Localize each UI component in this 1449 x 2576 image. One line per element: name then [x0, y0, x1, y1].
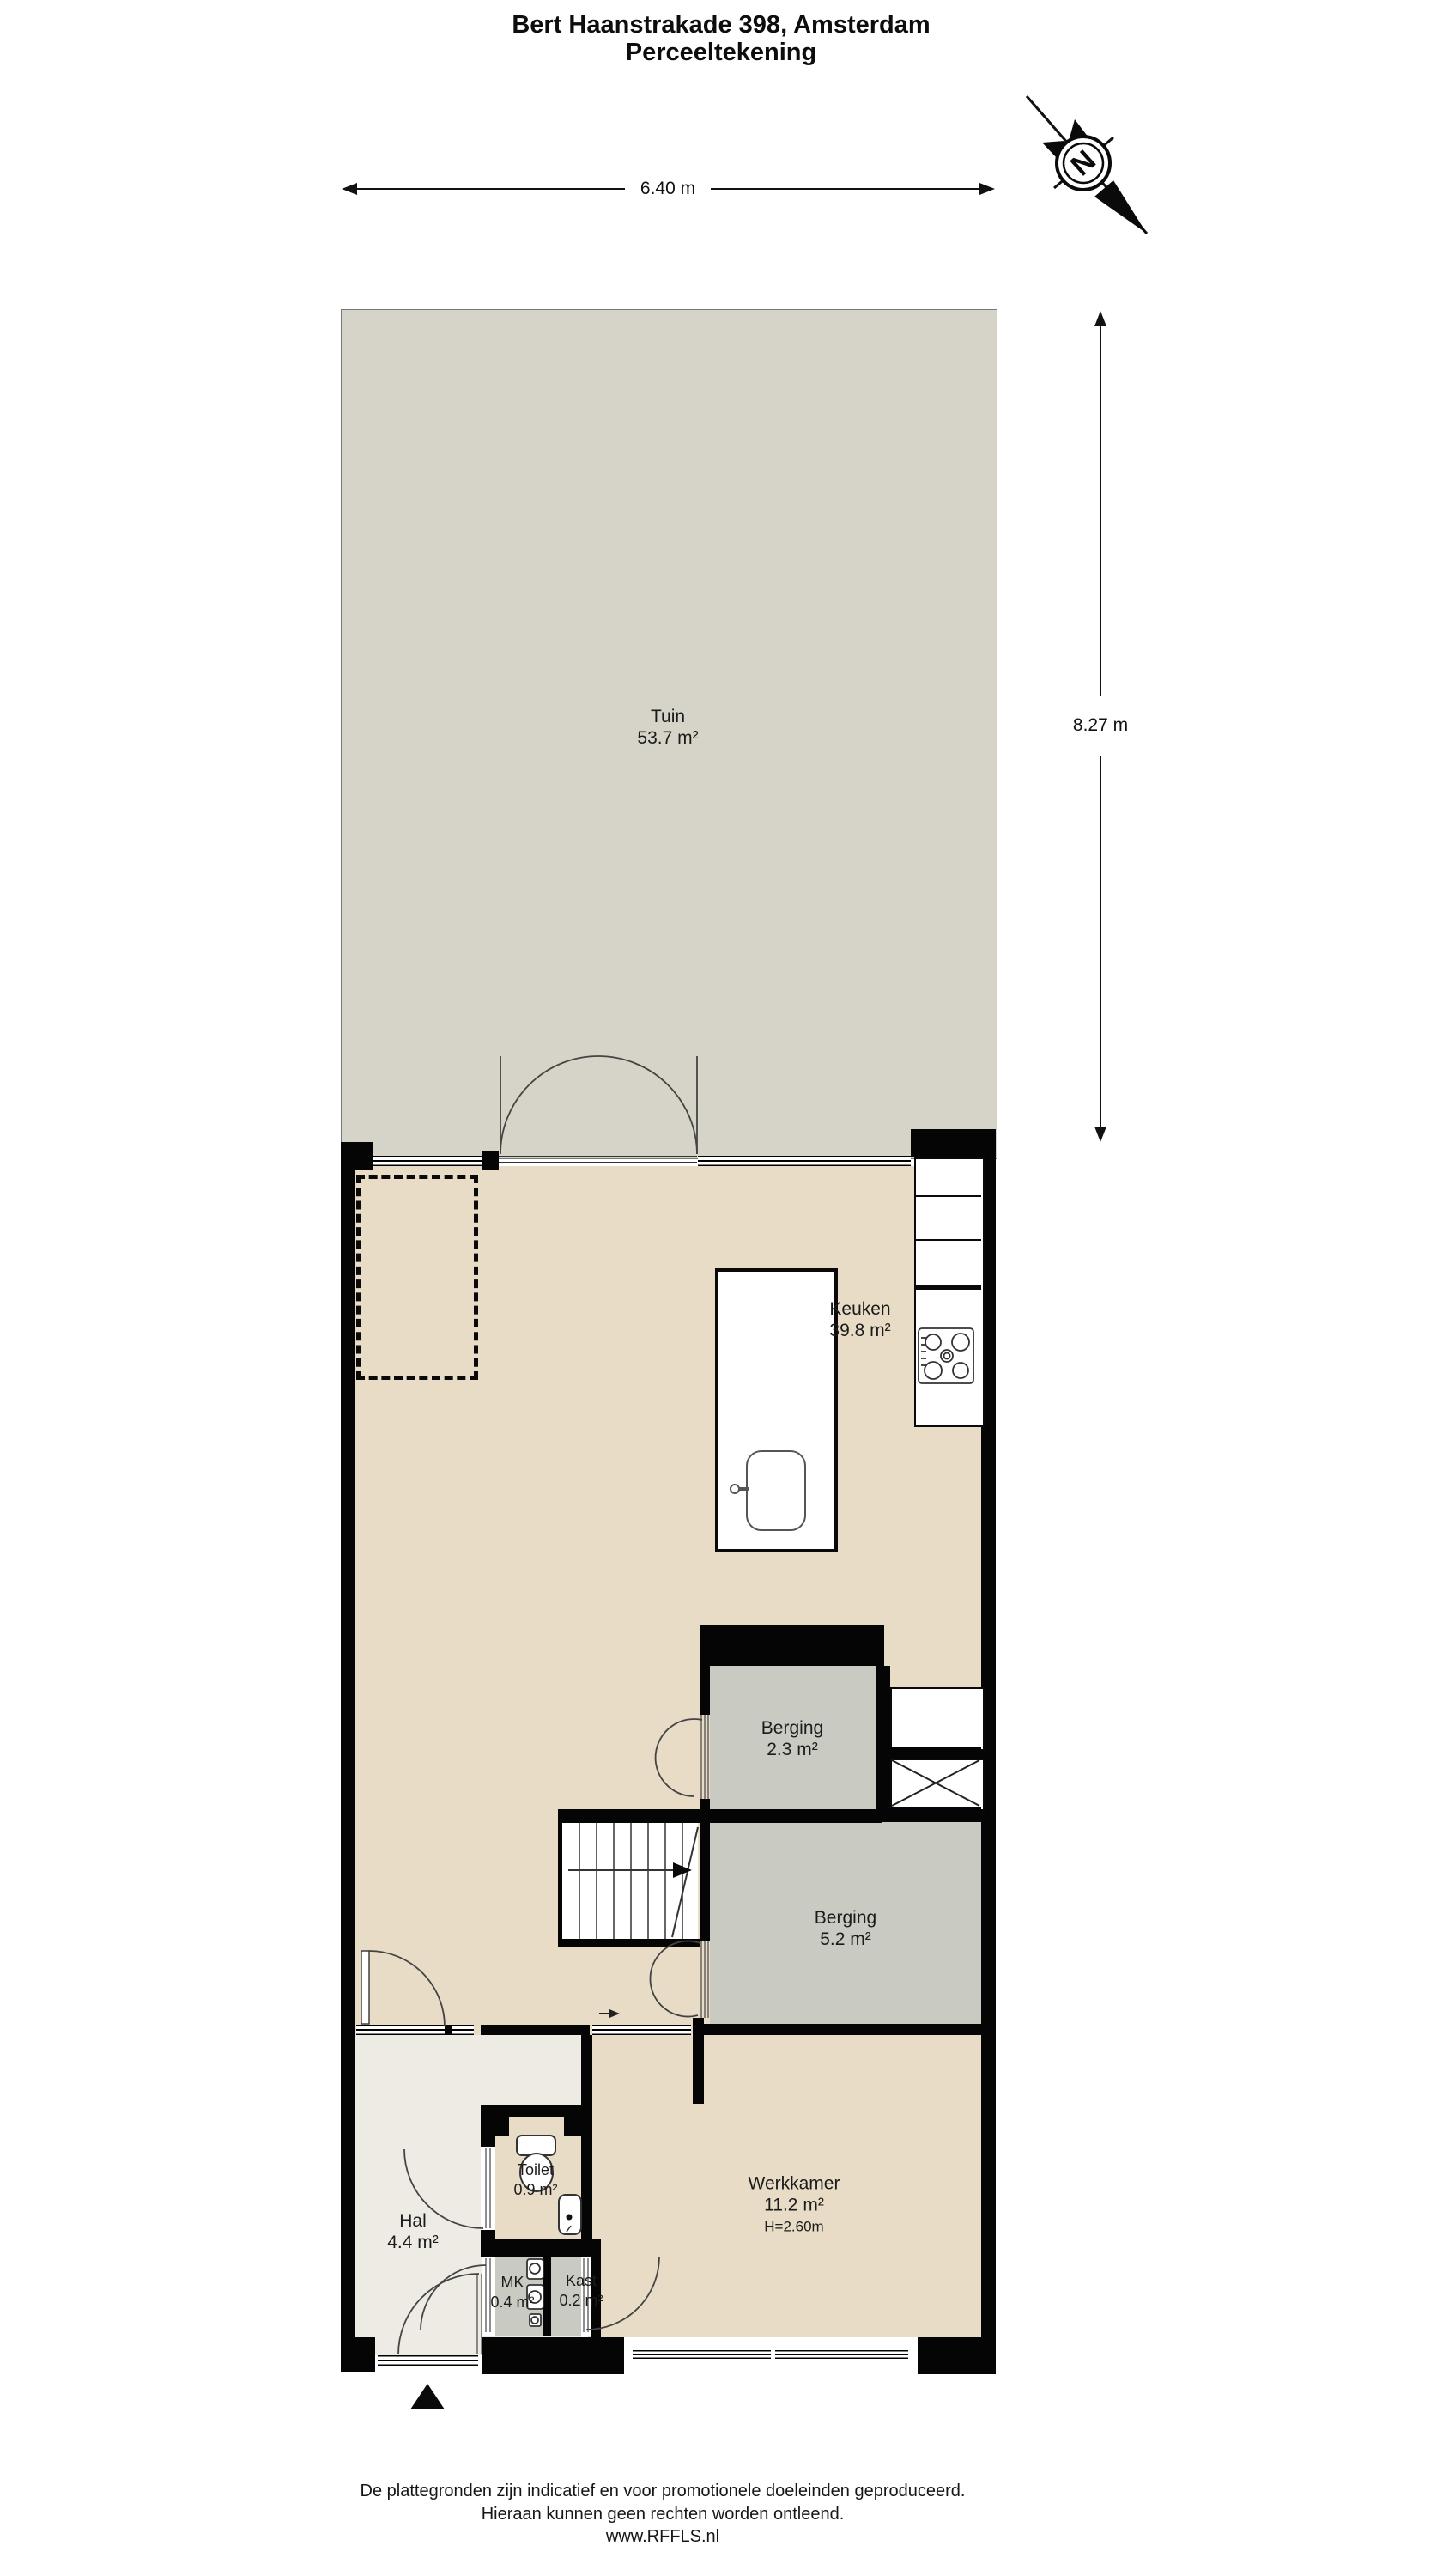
- wall: [558, 1823, 562, 1943]
- wall: [341, 1170, 355, 2372]
- room-label-berging-23: Berging 2.3 m²: [761, 1717, 823, 1760]
- front-door-glazing: [378, 2355, 478, 2366]
- wall: [700, 2024, 981, 2035]
- disclaimer-line-1: De plattegronden zijn indicatief en voor…: [361, 2480, 966, 2502]
- wall: [481, 2105, 581, 2117]
- room-label-hal: Hal 4.4 m²: [387, 2210, 439, 2253]
- wall: [445, 2025, 452, 2035]
- wall: [581, 2035, 592, 2105]
- wall: [700, 1666, 710, 1715]
- wall: [558, 1939, 700, 1947]
- wall: [564, 2117, 581, 2136]
- page-subtitle: Perceeltekening: [626, 38, 816, 67]
- counter-divider: [914, 1285, 981, 1290]
- wall: [890, 1747, 981, 1759]
- svg-text:N: N: [1064, 144, 1102, 183]
- room-label-tuin: Tuin 53.7 m²: [637, 706, 698, 749]
- window: [356, 2025, 445, 2035]
- kitchen-island: [715, 1268, 838, 1552]
- room-label-mk: MK 0.4 m²: [490, 2273, 534, 2312]
- wall: [890, 1807, 981, 1822]
- wall: [482, 1151, 499, 1170]
- room-label-werkkamer: Werkkamer 11.2 m² H=2.60m: [749, 2173, 840, 2238]
- wall: [481, 2105, 495, 2147]
- compass-icon: N: [1027, 96, 1147, 234]
- door-threshold: [499, 1156, 697, 1163]
- wall: [355, 2337, 375, 2372]
- counter-divider: [914, 1239, 981, 1241]
- dashed-outline: [356, 1175, 478, 1380]
- window: [775, 2350, 908, 2359]
- floorplan-page: Bert Haanstrakade 398, Amsterdam Perceel…: [0, 0, 1449, 2576]
- window: [452, 2025, 474, 2035]
- page-title: Bert Haanstrakade 398, Amsterdam: [512, 10, 930, 39]
- window: [373, 1156, 482, 1166]
- wall: [581, 2105, 592, 2239]
- counter-divider: [914, 1195, 981, 1197]
- width-dimension-label: 6.40 m: [634, 179, 702, 199]
- room-label-keuken: Keuken 39.8 m²: [829, 1298, 890, 1341]
- wall: [876, 1666, 890, 1822]
- wall: [481, 2239, 601, 2257]
- kitchen-counter: [914, 1157, 985, 1427]
- wall: [918, 2337, 996, 2374]
- stairs: [562, 1823, 698, 1939]
- shaft-box: [890, 1759, 985, 1811]
- disclaimer-line-3: www.RFFLS.nl: [606, 2525, 719, 2548]
- wall: [558, 1809, 882, 1823]
- room-label-kast: Kast 0.2 m²: [559, 2271, 603, 2311]
- disclaimer-line-2: Hieraan kunnen geen rechten worden ontle…: [482, 2503, 845, 2525]
- wall: [543, 2257, 551, 2336]
- entrance-marker: [410, 2384, 445, 2409]
- wall: [700, 1822, 710, 1941]
- wall: [481, 2025, 590, 2035]
- cabinet: [890, 1687, 985, 1751]
- height-dimension-label: 8.27 m: [1066, 715, 1135, 736]
- door-gap: [481, 2147, 495, 2230]
- window: [698, 1156, 911, 1166]
- wall: [481, 2230, 495, 2239]
- room-label-berging-52: Berging 5.2 m²: [815, 1907, 876, 1950]
- room-label-toilet: Toilet 0.9 m²: [513, 2160, 557, 2200]
- wall: [495, 2117, 509, 2136]
- wall: [482, 2337, 624, 2374]
- window: [592, 2025, 691, 2035]
- wall: [700, 1625, 884, 1666]
- wall: [911, 1129, 981, 1157]
- window: [633, 2350, 771, 2359]
- wall: [341, 1142, 373, 1170]
